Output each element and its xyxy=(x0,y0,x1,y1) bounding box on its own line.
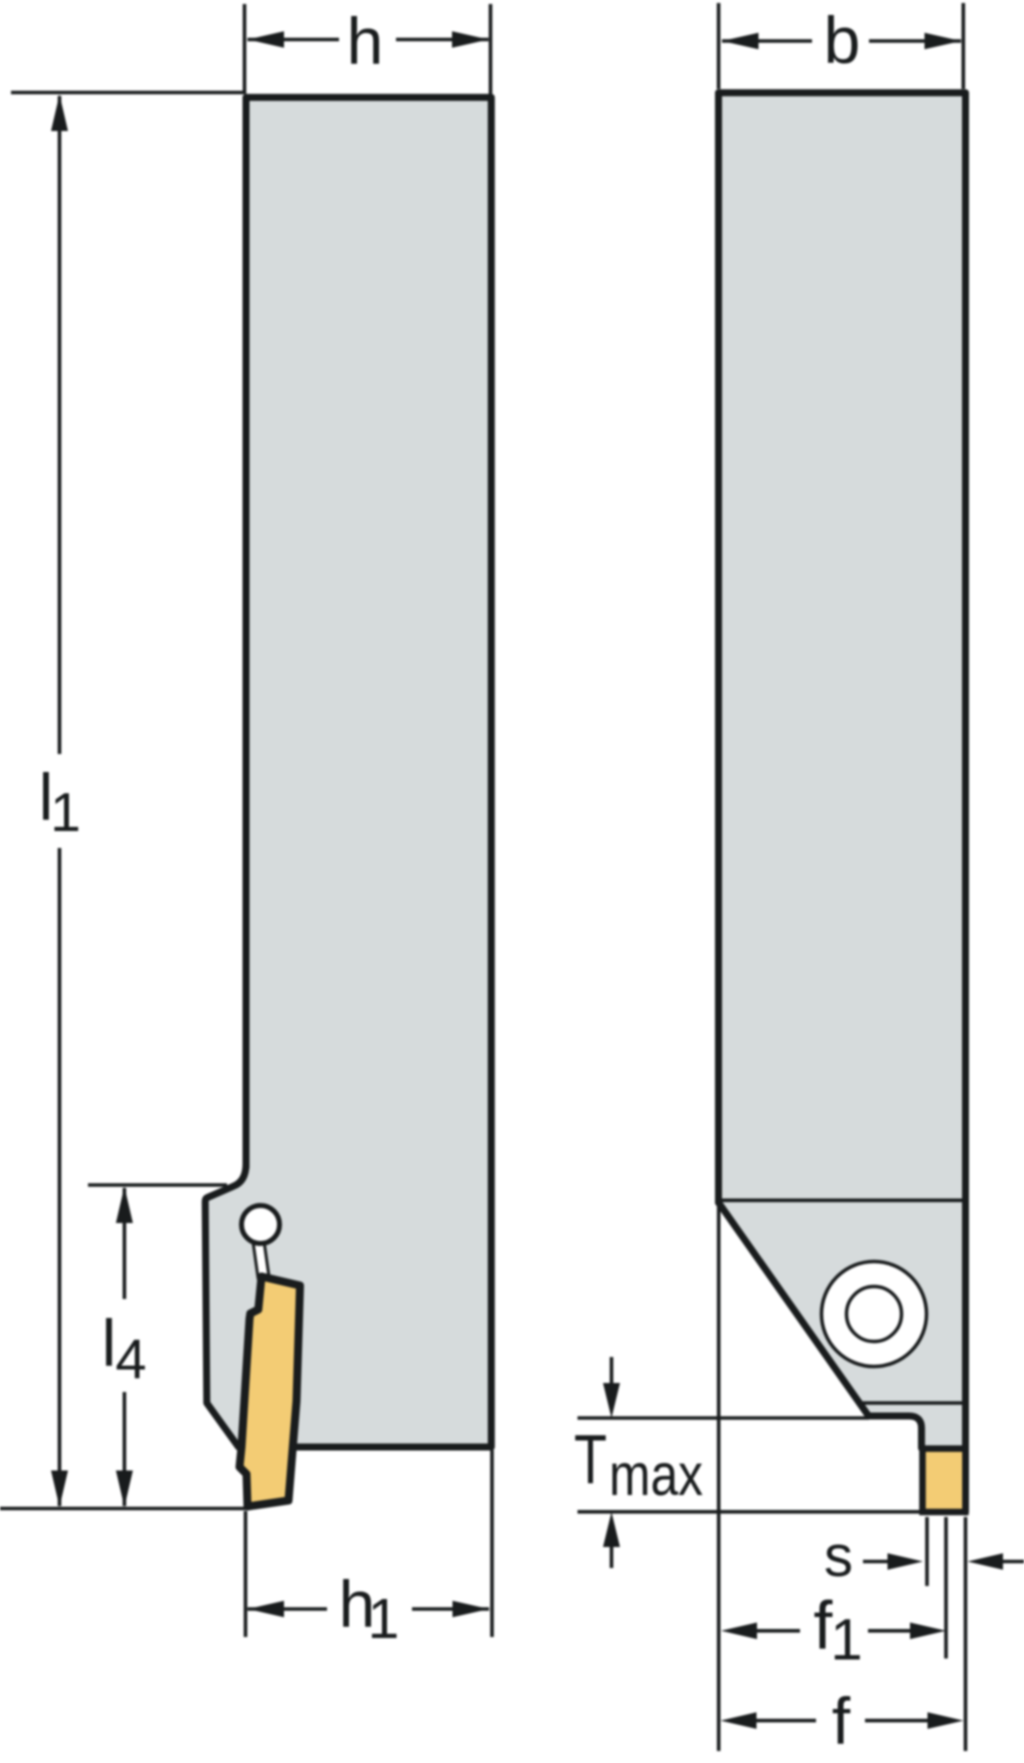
svg-text:h: h xyxy=(347,4,384,78)
svg-text:4: 4 xyxy=(115,1327,146,1390)
svg-text:b: b xyxy=(824,3,861,77)
svg-text:1: 1 xyxy=(368,1587,400,1651)
svg-text:1: 1 xyxy=(50,781,81,843)
svg-text:l: l xyxy=(102,1306,117,1380)
svg-text:s: s xyxy=(824,1524,853,1589)
svg-text:T: T xyxy=(574,1420,607,1498)
svg-text:f: f xyxy=(832,1684,851,1758)
svg-text:max: max xyxy=(609,1442,703,1508)
svg-text:1: 1 xyxy=(830,1608,862,1673)
